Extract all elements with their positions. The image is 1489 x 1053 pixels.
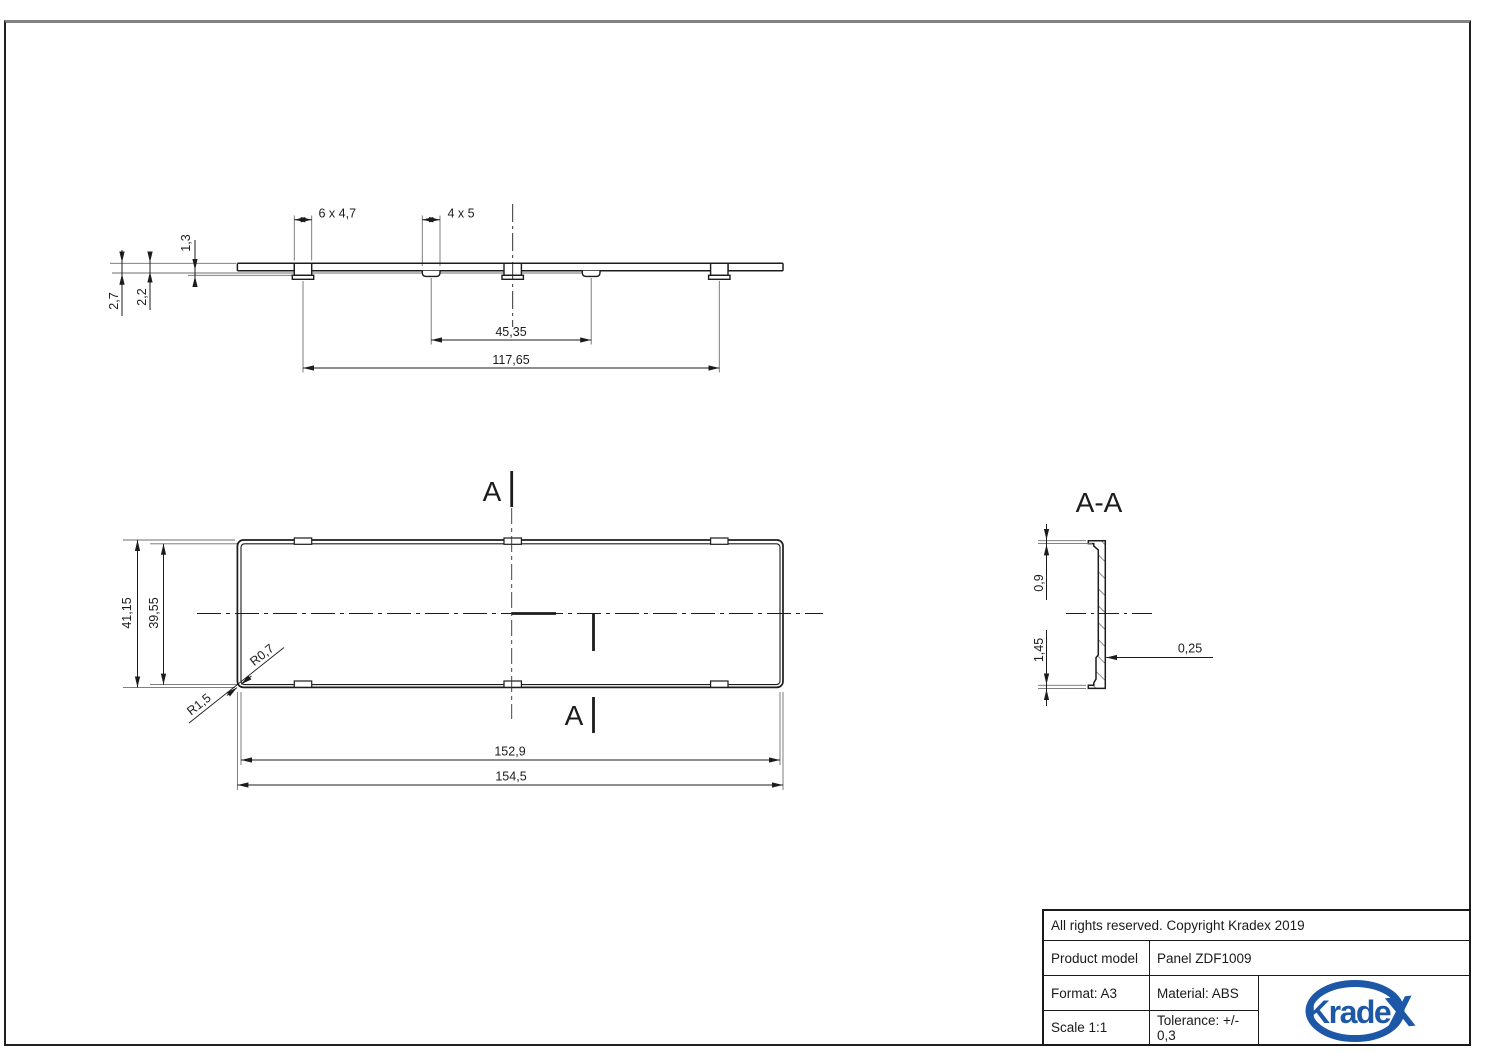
section-dimension-labels: 0,9 1,45 0,25 [1032, 574, 1202, 662]
dim-width-outer-label: 154,5 [495, 770, 526, 784]
profile-dimensions [122, 220, 719, 368]
dim-span-inner-label: 45,35 [495, 325, 526, 339]
dim-bottom-step-label: 1,45 [1032, 638, 1046, 662]
section-wall-profile [1088, 541, 1105, 689]
profile-view: 6 x 4,7 4 x 5 45,35 117,65 1,3 2,2 2,7 [107, 204, 783, 373]
section-dimensions [1047, 524, 1214, 706]
dim-tab-large-label: 6 x 4,7 [319, 207, 357, 221]
round-boss-left [422, 271, 440, 277]
snap-tab-right [711, 263, 728, 275]
panel-outline-inner [241, 544, 780, 685]
round-boss-right [582, 271, 600, 277]
snap-tab-right-foot [709, 275, 730, 279]
dim-tab-small-label: 4 x 5 [448, 207, 475, 221]
section-cut-line [512, 471, 594, 733]
front-extension-lines [123, 540, 783, 790]
dim-height-inner-label: 39,55 [147, 597, 161, 628]
snap-tab-left-foot [292, 275, 313, 279]
product-model-label: Product model [1044, 941, 1150, 976]
kradex-logo: Krade X [1259, 976, 1469, 1044]
dim-height-outer-label: 41,15 [120, 597, 134, 628]
section-letter-bottom: A [565, 700, 584, 731]
front-view: 41,15 39,55 152,9 154,5 R0,7 R1,5 A A [120, 471, 823, 790]
profile-dimension-labels: 6 x 4,7 4 x 5 45,35 117,65 1,3 2,2 2,7 [107, 207, 530, 368]
front-dimension-labels: 41,15 39,55 152,9 154,5 R0,7 R1,5 A A [120, 476, 584, 784]
edge-tab-marks [294, 538, 728, 687]
radius-outer-label: R1,5 [184, 691, 213, 718]
dim-step-label: 1,3 [179, 234, 193, 251]
profile-extension-lines [110, 216, 719, 373]
technical-drawing-canvas: 6 x 4,7 4 x 5 45,35 117,65 1,3 2,2 2,7 [0, 0, 1489, 1053]
section-view-title: A-A [1076, 487, 1123, 518]
drawing-sheet: 6 x 4,7 4 x 5 45,35 117,65 1,3 2,2 2,7 [0, 0, 1489, 1053]
section-view: A-A 0,9 [1032, 487, 1213, 706]
format-field: Format: A3 [1044, 976, 1150, 1011]
dim-width-inner-label: 152,9 [494, 745, 525, 759]
snap-tab-left [294, 263, 311, 275]
dim-thickness-total-label: 2,7 [107, 292, 121, 309]
dim-top-step-label: 0,9 [1032, 574, 1046, 591]
front-dimensions [138, 540, 784, 785]
logo-text-x: X [1383, 987, 1417, 1039]
dim-span-outer-label: 117,65 [492, 353, 529, 367]
dim-thickness-cap-label: 2,2 [135, 288, 149, 305]
scale-field: Scale 1:1 [1044, 1011, 1150, 1044]
product-model-value: Panel ZDF1009 [1150, 941, 1469, 976]
copyright-text: All rights reserved. Copyright Kradex 20… [1044, 911, 1469, 941]
kradex-logo-graphic: Krade X [1289, 977, 1439, 1043]
title-block: All rights reserved. Copyright Kradex 20… [1042, 909, 1471, 1046]
material-field: Material: ABS [1150, 976, 1259, 1011]
section-letter-top: A [483, 476, 502, 507]
tolerance-field: Tolerance: +/- 0,3 [1150, 1011, 1259, 1044]
logo-text-krade: Krade [1307, 994, 1391, 1030]
dim-wall-label: 0,25 [1178, 642, 1202, 656]
